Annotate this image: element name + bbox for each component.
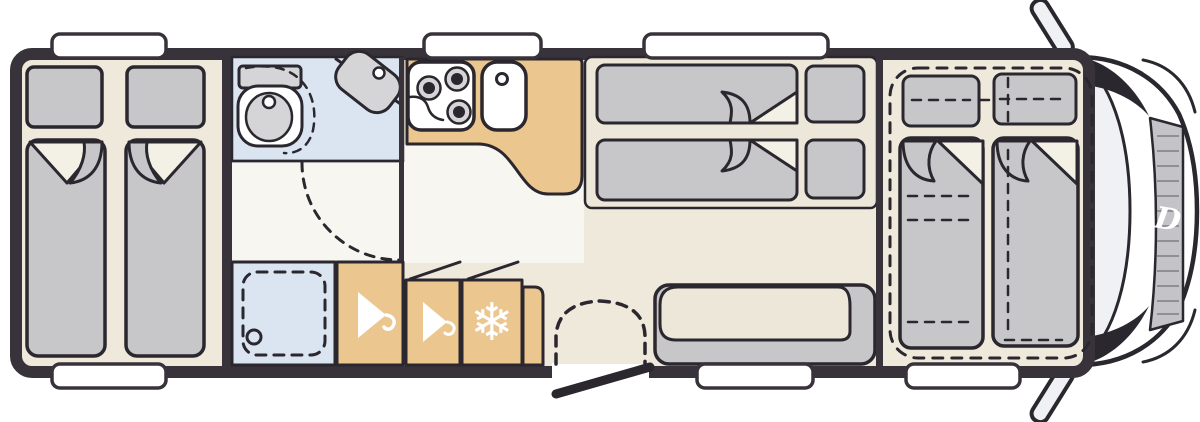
toilet-flush-button (263, 96, 275, 108)
window-top-left (52, 34, 166, 58)
sofa (655, 285, 875, 364)
shower (232, 262, 335, 365)
shower-drain (247, 330, 261, 344)
rear-bed-right-pillow (127, 67, 204, 127)
entry (552, 301, 650, 394)
sink-faucet (497, 74, 508, 85)
snowflake-icon: ❄ (470, 293, 514, 353)
washbasin-faucet (374, 68, 385, 79)
entry-step-dashed (556, 301, 645, 364)
stove-burner (418, 77, 441, 100)
floorplan-stage: D (0, 0, 1200, 422)
stove-burner (446, 68, 469, 91)
window-bottom-right (906, 364, 1020, 388)
dinette-pillow-top (806, 66, 864, 122)
window-bottom-middle (697, 364, 813, 388)
stove-burner (448, 101, 471, 124)
cabinet-step (523, 287, 543, 365)
wall-corridor-kitchen (399, 57, 404, 263)
kitchen-sink (482, 62, 526, 130)
motorhome-floorplan: D (0, 0, 1200, 422)
window-top-middle (644, 34, 828, 58)
dinette (585, 57, 877, 208)
sofa-seat (660, 287, 850, 340)
wall-lounge-front (876, 57, 883, 366)
dinette-pillow-bottom (806, 140, 864, 198)
rear-bed-left-pillow (27, 67, 102, 127)
corridor-floor (232, 160, 403, 263)
cab-front: D (1078, 57, 1197, 365)
window-bottom-left (52, 364, 166, 388)
window-top-kitchen (424, 34, 541, 58)
brand-logo-letter: D (1151, 200, 1183, 239)
